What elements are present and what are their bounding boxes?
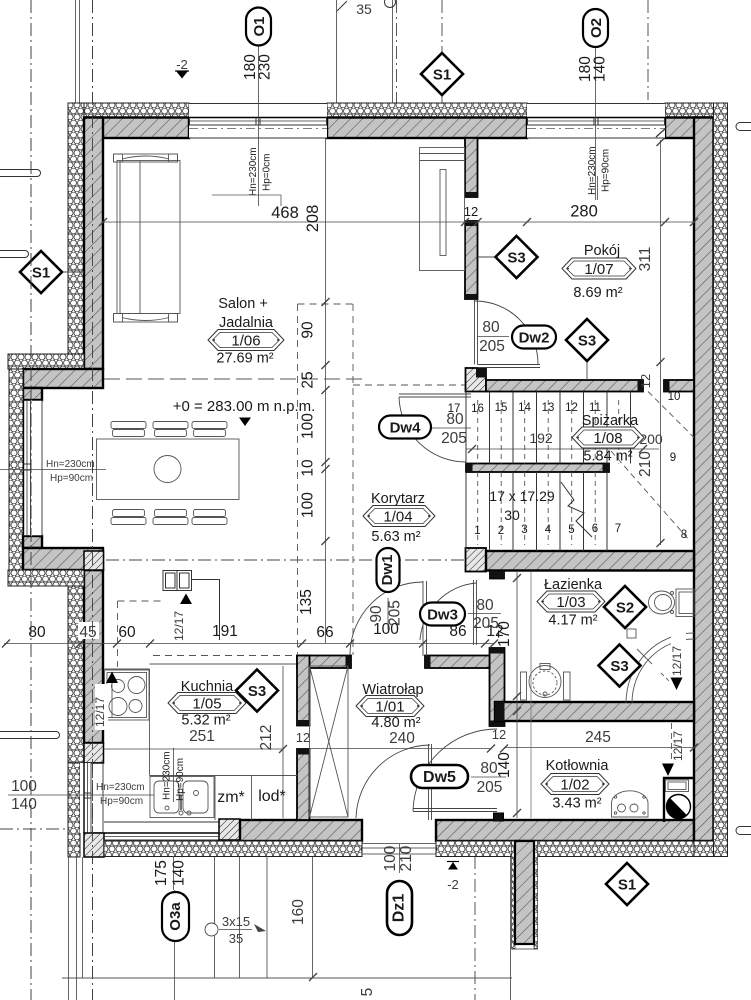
svg-text:3: 3 xyxy=(521,524,527,536)
svg-text:8.69 m²: 8.69 m² xyxy=(573,285,622,301)
svg-text:140: 140 xyxy=(496,752,513,778)
svg-text:230: 230 xyxy=(257,54,274,80)
svg-text:O1: O1 xyxy=(251,16,268,36)
svg-text:9: 9 xyxy=(670,452,676,464)
svg-text:311: 311 xyxy=(637,247,654,272)
svg-text:S1: S1 xyxy=(32,265,50,282)
svg-text:66: 66 xyxy=(316,624,333,641)
svg-text:Hp=90cm: Hp=90cm xyxy=(50,473,93,484)
svg-text:90: 90 xyxy=(300,321,317,339)
svg-text:12/17: 12/17 xyxy=(671,731,685,761)
svg-text:1/07: 1/07 xyxy=(584,261,613,278)
svg-text:80: 80 xyxy=(446,411,464,428)
svg-text:205: 205 xyxy=(477,779,503,796)
svg-text:35: 35 xyxy=(229,931,243,946)
svg-text:205: 205 xyxy=(473,615,499,632)
svg-text:12: 12 xyxy=(296,730,310,745)
svg-text:468: 468 xyxy=(271,204,299,222)
svg-text:Hn=230cm: Hn=230cm xyxy=(248,147,259,196)
svg-text:205: 205 xyxy=(387,600,404,626)
svg-text:135: 135 xyxy=(298,589,315,615)
svg-text:Salon +: Salon + xyxy=(218,296,268,312)
svg-text:Dz1: Dz1 xyxy=(391,894,408,923)
svg-text:100: 100 xyxy=(300,413,317,439)
svg-text:1/05: 1/05 xyxy=(192,696,221,713)
svg-text:Hn=230cm: Hn=230cm xyxy=(46,459,95,470)
svg-text:16: 16 xyxy=(471,403,484,415)
svg-text:S3: S3 xyxy=(507,250,525,267)
svg-text:S2: S2 xyxy=(616,600,634,617)
svg-text:S3: S3 xyxy=(248,683,266,700)
svg-text:3x15: 3x15 xyxy=(222,914,250,929)
svg-text:205: 205 xyxy=(479,338,505,355)
svg-text:-2: -2 xyxy=(447,877,459,892)
svg-text:7: 7 xyxy=(615,523,621,535)
svg-text:zm*: zm* xyxy=(217,789,245,806)
svg-text:100: 100 xyxy=(11,778,37,795)
svg-text:30: 30 xyxy=(504,507,520,523)
svg-text:Pokój: Pokój xyxy=(584,243,620,259)
svg-text:Hp=90cm: Hp=90cm xyxy=(100,796,143,807)
svg-text:Dw4: Dw4 xyxy=(390,420,422,437)
svg-text:5.63 m²: 5.63 m² xyxy=(371,529,420,545)
svg-text:1/06: 1/06 xyxy=(231,333,260,350)
svg-text:192: 192 xyxy=(529,430,553,446)
svg-text:80: 80 xyxy=(476,597,494,614)
svg-text:Korytarz: Korytarz xyxy=(371,491,425,507)
svg-text:10: 10 xyxy=(300,459,317,477)
svg-text:4.80 m²: 4.80 m² xyxy=(371,715,420,731)
svg-text:27.69 m²: 27.69 m² xyxy=(216,351,273,367)
svg-text:Hn=230cm: Hn=230cm xyxy=(587,146,598,195)
svg-text:90: 90 xyxy=(368,605,385,623)
svg-text:Hn=230cm: Hn=230cm xyxy=(96,782,145,793)
svg-text:Hp=90cm: Hp=90cm xyxy=(601,149,612,192)
svg-text:S1: S1 xyxy=(618,877,636,894)
svg-text:1/03: 1/03 xyxy=(556,594,585,611)
svg-text:100: 100 xyxy=(300,492,317,518)
svg-text:Hn=230cm: Hn=230cm xyxy=(162,751,173,800)
svg-text:25: 25 xyxy=(300,371,317,388)
svg-text:208: 208 xyxy=(304,205,322,233)
svg-text:5.32 m²: 5.32 m² xyxy=(181,713,230,729)
svg-text:251: 251 xyxy=(189,728,215,745)
svg-text:1/04: 1/04 xyxy=(383,509,412,526)
svg-text:12/17: 12/17 xyxy=(172,611,186,641)
svg-text:15: 15 xyxy=(495,402,508,414)
svg-text:12/17: 12/17 xyxy=(670,646,684,676)
svg-text:12/17: 12/17 xyxy=(93,697,107,727)
svg-text:S3: S3 xyxy=(610,658,628,675)
svg-text:-2: -2 xyxy=(176,57,188,72)
svg-text:10: 10 xyxy=(668,391,681,403)
svg-text:Dw2: Dw2 xyxy=(519,330,550,347)
svg-text:80: 80 xyxy=(482,319,500,336)
svg-text:1: 1 xyxy=(474,525,480,537)
svg-text:Kotłownia: Kotłownia xyxy=(546,758,610,774)
svg-text:12: 12 xyxy=(638,374,653,388)
svg-text:1/01: 1/01 xyxy=(375,699,404,716)
svg-text:245: 245 xyxy=(585,729,611,746)
svg-text:5: 5 xyxy=(568,524,574,536)
svg-text:S3: S3 xyxy=(578,333,596,350)
svg-text:O3a: O3a xyxy=(167,902,184,931)
svg-text:1/08: 1/08 xyxy=(593,430,622,447)
svg-text:O2: O2 xyxy=(588,18,605,38)
svg-text:17 x 17.29: 17 x 17.29 xyxy=(489,488,555,504)
svg-text:205: 205 xyxy=(441,430,467,447)
svg-text:1/02: 1/02 xyxy=(560,777,589,794)
svg-text:14: 14 xyxy=(518,402,531,414)
svg-text:60: 60 xyxy=(118,624,136,641)
svg-text:140: 140 xyxy=(171,860,188,886)
svg-text:2: 2 xyxy=(498,525,504,537)
svg-text:Dw1: Dw1 xyxy=(379,555,396,586)
svg-text:S1: S1 xyxy=(433,67,451,84)
svg-text:8: 8 xyxy=(681,529,687,541)
svg-text:240: 240 xyxy=(389,730,415,747)
svg-text:210: 210 xyxy=(637,451,654,477)
svg-text:280: 280 xyxy=(570,203,598,221)
svg-text:160: 160 xyxy=(290,899,307,925)
svg-text:191: 191 xyxy=(212,623,238,640)
svg-text:4: 4 xyxy=(545,524,552,536)
svg-text:12: 12 xyxy=(492,727,506,742)
svg-text:212: 212 xyxy=(258,725,275,751)
svg-text:Jadalnia: Jadalnia xyxy=(219,315,274,331)
svg-text:210: 210 xyxy=(398,845,415,871)
svg-text:Dw5: Dw5 xyxy=(423,769,456,786)
svg-text:140: 140 xyxy=(11,796,37,813)
svg-text:175: 175 xyxy=(153,860,170,886)
svg-text:3.43 m²: 3.43 m² xyxy=(552,796,601,812)
svg-text:13: 13 xyxy=(542,402,555,414)
svg-text:100: 100 xyxy=(382,845,399,871)
svg-text:35: 35 xyxy=(356,1,372,17)
svg-text:Hp=90cm: Hp=90cm xyxy=(175,758,186,801)
svg-text:140: 140 xyxy=(592,56,609,82)
svg-text:6: 6 xyxy=(592,523,598,535)
svg-text:45: 45 xyxy=(79,624,96,641)
svg-text:Dw3: Dw3 xyxy=(427,607,458,624)
svg-text:+0 = 283.00 m n.p.m.: +0 = 283.00 m n.p.m. xyxy=(173,398,316,415)
svg-text:Hp=0cm: Hp=0cm xyxy=(262,153,273,191)
svg-text:5: 5 xyxy=(359,988,376,997)
svg-text:12: 12 xyxy=(565,402,578,414)
svg-text:12: 12 xyxy=(464,204,478,219)
svg-text:80: 80 xyxy=(480,760,498,777)
svg-text:4.17 m²: 4.17 m² xyxy=(548,613,597,629)
svg-text:5.84 m²: 5.84 m² xyxy=(583,449,632,465)
svg-text:lod*: lod* xyxy=(258,788,286,805)
